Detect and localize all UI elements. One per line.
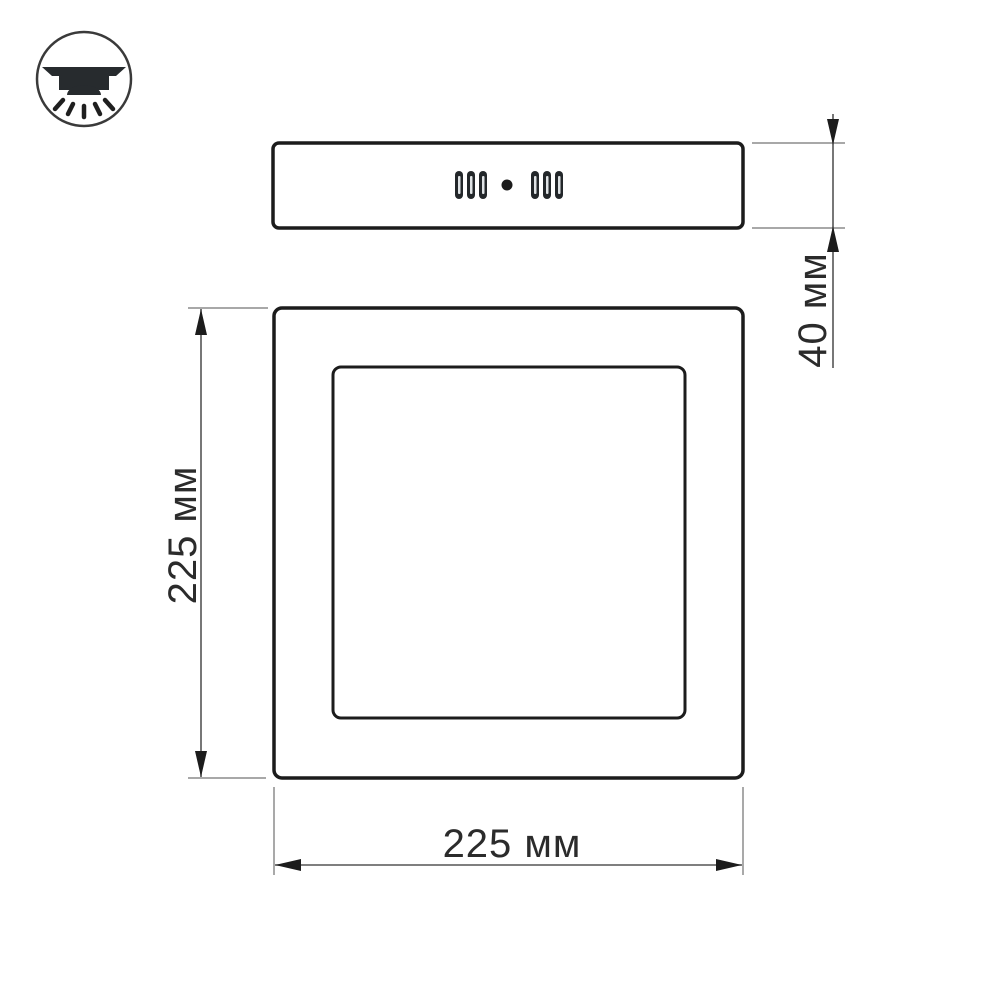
dimension-thickness: 40 мм	[752, 114, 845, 368]
side-view	[273, 143, 743, 228]
front-view	[274, 308, 743, 778]
thickness-label: 40 мм	[791, 252, 835, 368]
surface-mount-downlight-icon	[37, 32, 131, 126]
vent-slot-group-right	[531, 171, 563, 199]
diffuser-outline	[333, 367, 685, 718]
arrowhead-up-icon	[827, 226, 839, 252]
dimension-height: 225 мм	[161, 308, 268, 778]
technical-drawing-page: 40 мм 225 мм 225 мм	[0, 0, 1000, 1000]
arrowhead-right-icon	[716, 859, 742, 871]
vent-slot-group-left	[455, 171, 487, 199]
vent-slot-slit	[458, 176, 461, 194]
center-dot	[502, 180, 513, 191]
drawing-canvas: 40 мм 225 мм 225 мм	[0, 0, 1000, 1000]
width-label: 225 мм	[443, 822, 582, 866]
vent-slot-slit	[546, 176, 549, 194]
arrowhead-left-icon	[275, 859, 301, 871]
height-label: 225 мм	[161, 466, 205, 605]
arrowhead-down-icon	[827, 119, 839, 145]
arrowhead-down-icon	[195, 751, 207, 777]
vent-slot-slit	[534, 176, 537, 194]
arrowhead-up-icon	[195, 309, 207, 335]
vent-slot-slit	[558, 176, 561, 194]
vent-slot-slit	[482, 176, 485, 194]
vent-slot-slit	[470, 176, 473, 194]
dimension-width: 225 мм	[274, 787, 743, 875]
